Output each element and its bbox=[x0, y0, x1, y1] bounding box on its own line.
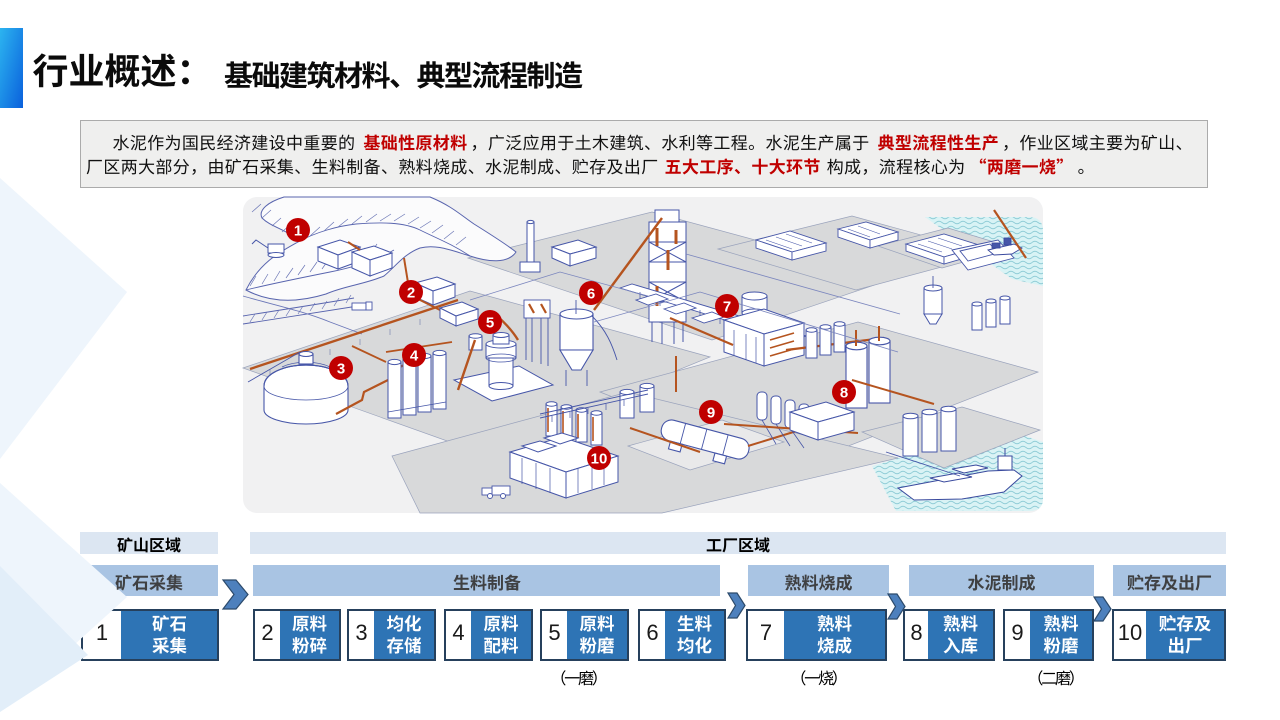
svg-text:9: 9 bbox=[707, 405, 715, 422]
svg-text:8: 8 bbox=[840, 385, 848, 402]
svg-text:2: 2 bbox=[407, 285, 415, 302]
svg-text:3: 3 bbox=[337, 361, 345, 378]
svg-text:1: 1 bbox=[294, 223, 302, 240]
svg-text:10: 10 bbox=[591, 451, 608, 468]
svg-text:6: 6 bbox=[587, 286, 595, 303]
svg-text:7: 7 bbox=[723, 299, 731, 316]
svg-text:4: 4 bbox=[410, 348, 419, 365]
svg-text:5: 5 bbox=[486, 315, 494, 332]
